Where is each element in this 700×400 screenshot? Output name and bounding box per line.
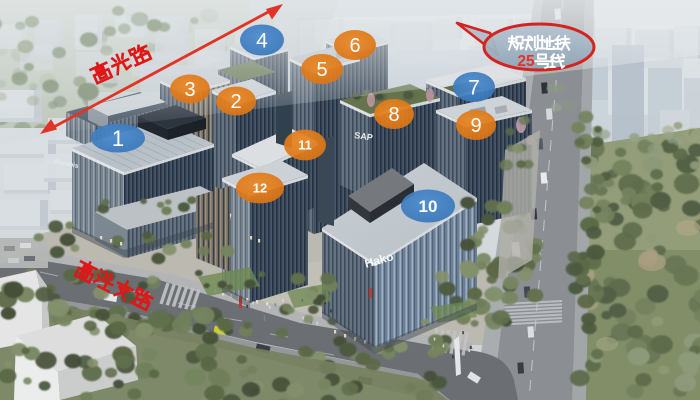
svg-text:1: 1 xyxy=(112,126,124,151)
svg-text:6: 6 xyxy=(349,35,360,57)
svg-text:10: 10 xyxy=(419,197,438,216)
svg-text:7: 7 xyxy=(468,77,480,100)
svg-text:8: 8 xyxy=(388,104,399,126)
svg-text:11: 11 xyxy=(298,138,312,153)
svg-text:5: 5 xyxy=(316,59,327,81)
svg-text:2: 2 xyxy=(230,91,241,113)
svg-text:9: 9 xyxy=(470,115,481,137)
svg-text:25: 25 xyxy=(517,53,535,70)
svg-text:4: 4 xyxy=(256,30,268,53)
svg-text:3: 3 xyxy=(184,79,195,101)
svg-text:12: 12 xyxy=(253,181,267,196)
